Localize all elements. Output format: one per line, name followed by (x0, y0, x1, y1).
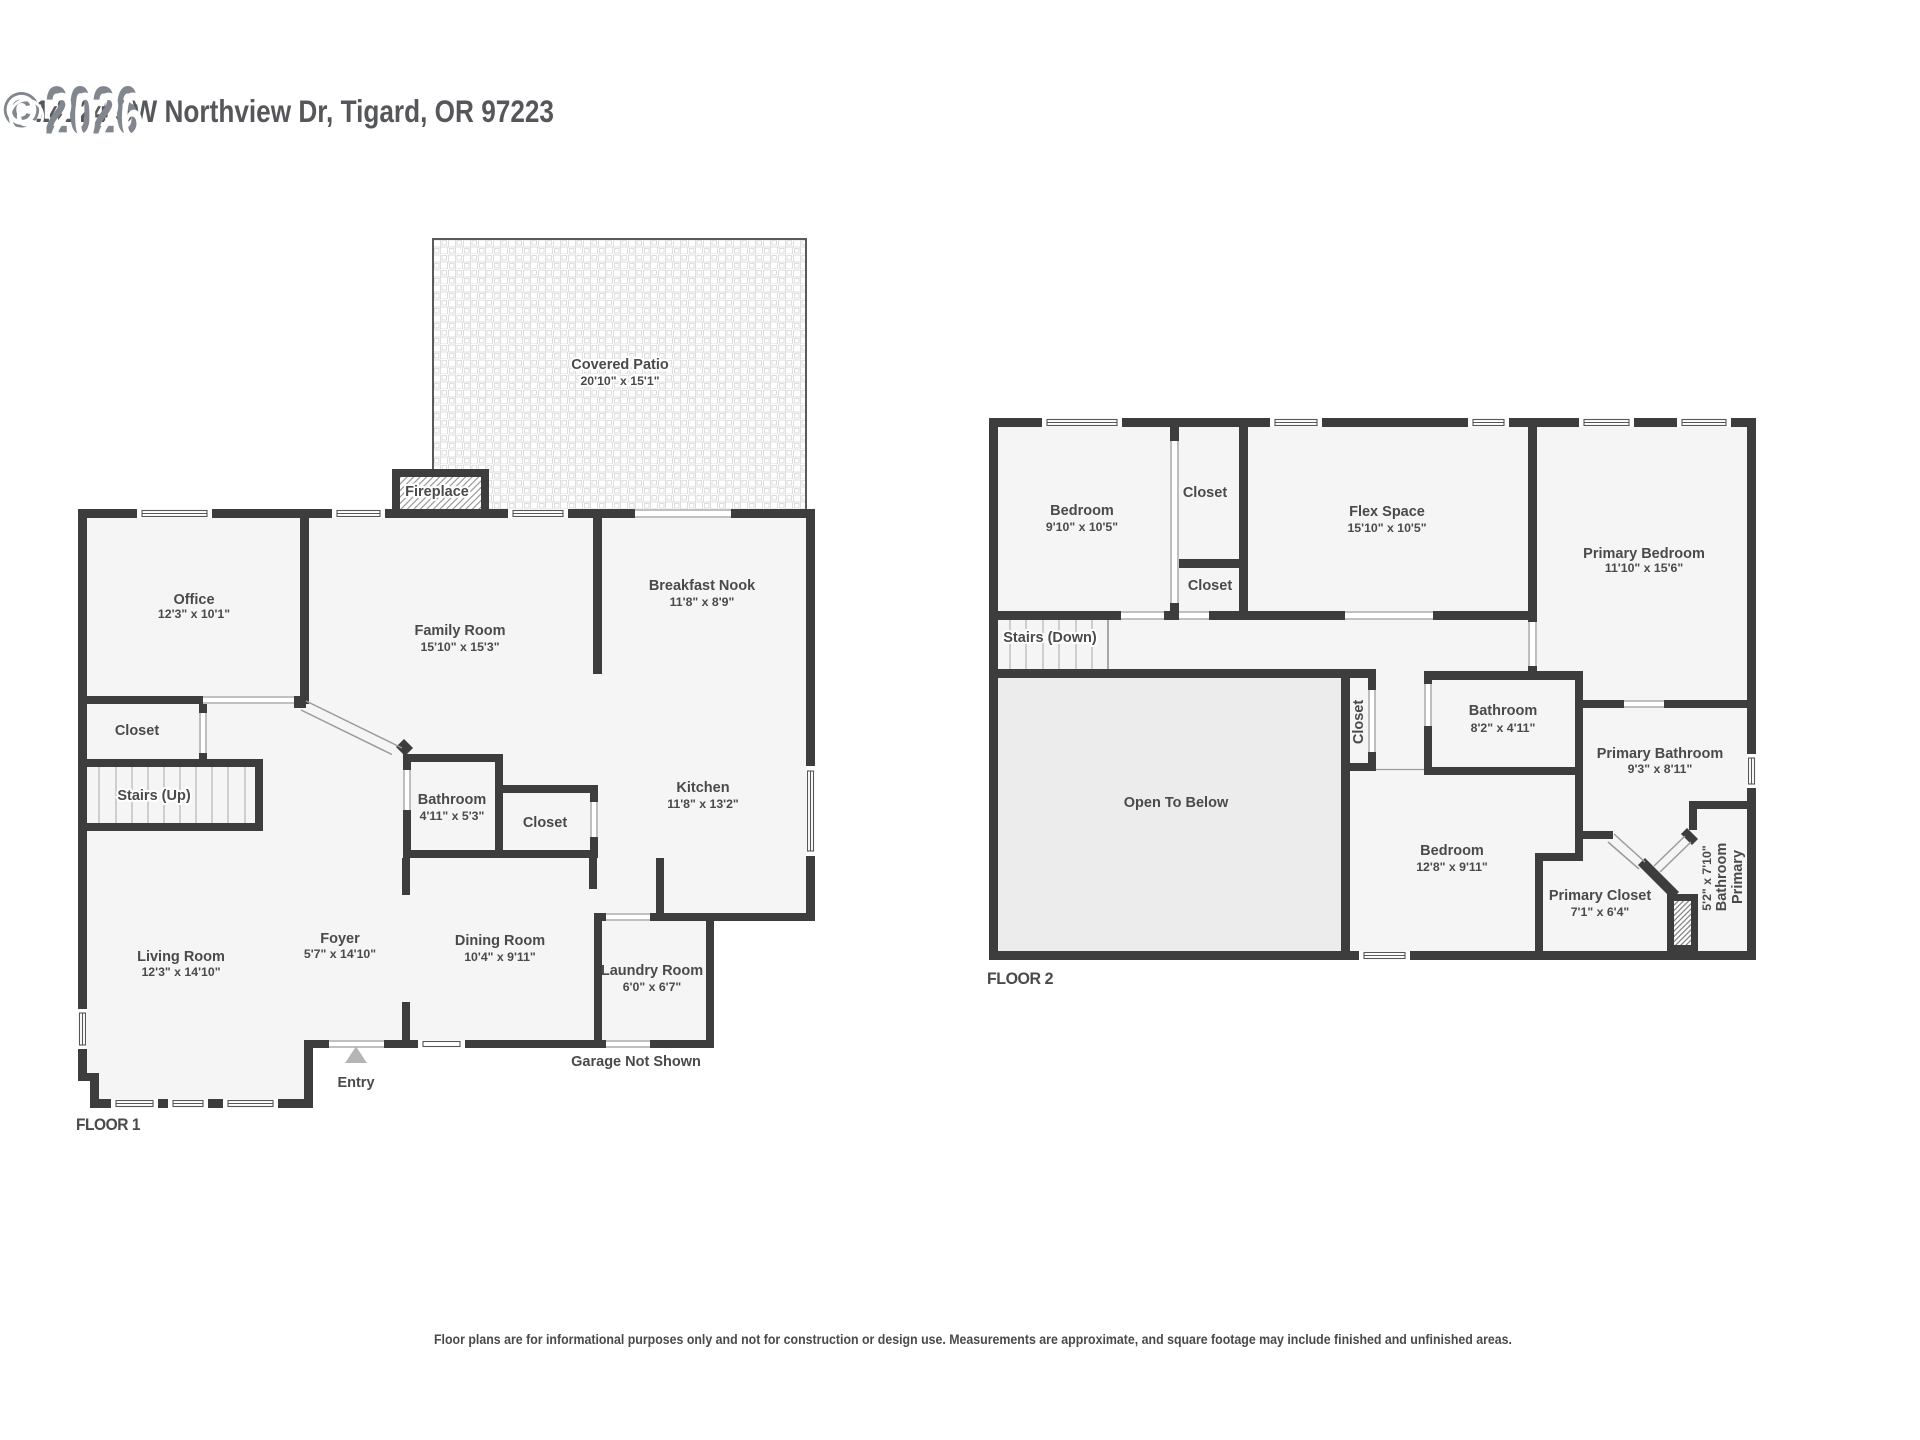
svg-text:Fireplace: Fireplace (405, 484, 469, 500)
svg-text:5'7" x 14'10": 5'7" x 14'10" (304, 947, 376, 961)
svg-text:Stairs (Down): Stairs (Down) (1003, 630, 1097, 646)
svg-text:Bedroom: Bedroom (1420, 843, 1484, 859)
svg-text:Primary Closet: Primary Closet (1549, 888, 1652, 904)
svg-text:Closet: Closet (115, 723, 159, 739)
svg-text:Closet: Closet (523, 815, 567, 831)
svg-text:Living Room: Living Room (137, 949, 225, 965)
svg-text:Open To Below: Open To Below (1124, 795, 1229, 811)
svg-text:9'3" x 8'11": 9'3" x 8'11" (1628, 762, 1693, 776)
svg-text:12'3" x 14'10": 12'3" x 14'10" (141, 965, 220, 979)
svg-text:FLOOR 2: FLOOR 2 (987, 969, 1053, 988)
svg-text:12'3" x 10'1": 12'3" x 10'1" (158, 607, 230, 621)
svg-text:Primary Bathroom: Primary Bathroom (1597, 746, 1724, 762)
svg-text:11'8" x 13'2": 11'8" x 13'2" (667, 797, 739, 811)
svg-text:Entry: Entry (337, 1075, 374, 1091)
svg-text:Bathroom: Bathroom (1714, 843, 1730, 911)
svg-text:8'2" x 4'11": 8'2" x 4'11" (1471, 721, 1536, 735)
svg-text:Garage Not Shown: Garage Not Shown (571, 1054, 701, 1070)
svg-text:Covered Patio: Covered Patio (571, 357, 669, 373)
svg-text:Dining Room: Dining Room (455, 933, 545, 949)
svg-text:5'2" x 7'10": 5'2" x 7'10" (1700, 845, 1714, 911)
svg-text:12'8" x 9'11": 12'8" x 9'11" (1416, 860, 1488, 874)
svg-text:6'0" x 6'7": 6'0" x 6'7" (623, 980, 682, 994)
svg-text:Bathroom: Bathroom (418, 792, 486, 808)
svg-text:©: © (8, 89, 45, 145)
svg-text:Laundry Room: Laundry Room (601, 963, 703, 979)
svg-text:4'11" x 5'3": 4'11" x 5'3" (420, 809, 485, 823)
svg-text:Breakfast Nook: Breakfast Nook (649, 578, 756, 594)
svg-text:Office: Office (173, 592, 214, 608)
svg-text:Foyer: Foyer (320, 931, 360, 947)
svg-text:Flex Space: Flex Space (1349, 504, 1425, 520)
svg-text:11'8" x 8'9": 11'8" x 8'9" (670, 595, 735, 609)
svg-text:7'1" x 6'4": 7'1" x 6'4" (1571, 905, 1630, 919)
svg-text:11'10" x 15'6": 11'10" x 15'6" (1605, 561, 1684, 575)
svg-text:Primary Bedroom: Primary Bedroom (1583, 546, 1705, 562)
svg-text:20'10" x 15'1": 20'10" x 15'1" (580, 374, 659, 388)
svg-text:Floor plans are for informatio: Floor plans are for informational purpos… (434, 1332, 1512, 1347)
svg-text:FLOOR 1: FLOOR 1 (76, 1115, 140, 1134)
svg-text:Closet: Closet (1188, 578, 1232, 594)
svg-text:15'10" x 10'5": 15'10" x 10'5" (1347, 521, 1426, 535)
svg-text:Family Room: Family Room (414, 623, 505, 639)
svg-text:Primary: Primary (1730, 850, 1746, 904)
svg-text:15'10" x 15'3": 15'10" x 15'3" (420, 640, 499, 654)
svg-text:Closet: Closet (1183, 485, 1227, 501)
svg-text:Bathroom: Bathroom (1469, 703, 1537, 719)
svg-text:Kitchen: Kitchen (676, 780, 729, 796)
svg-text:10'4" x 9'11": 10'4" x 9'11" (464, 950, 536, 964)
svg-text:Stairs (Up): Stairs (Up) (117, 788, 190, 804)
svg-text:2026: 2026 (50, 79, 144, 155)
svg-text:Closet: Closet (1351, 700, 1367, 744)
svg-text:9'10" x 10'5": 9'10" x 10'5" (1046, 520, 1118, 534)
svg-text:Bedroom: Bedroom (1050, 503, 1114, 519)
